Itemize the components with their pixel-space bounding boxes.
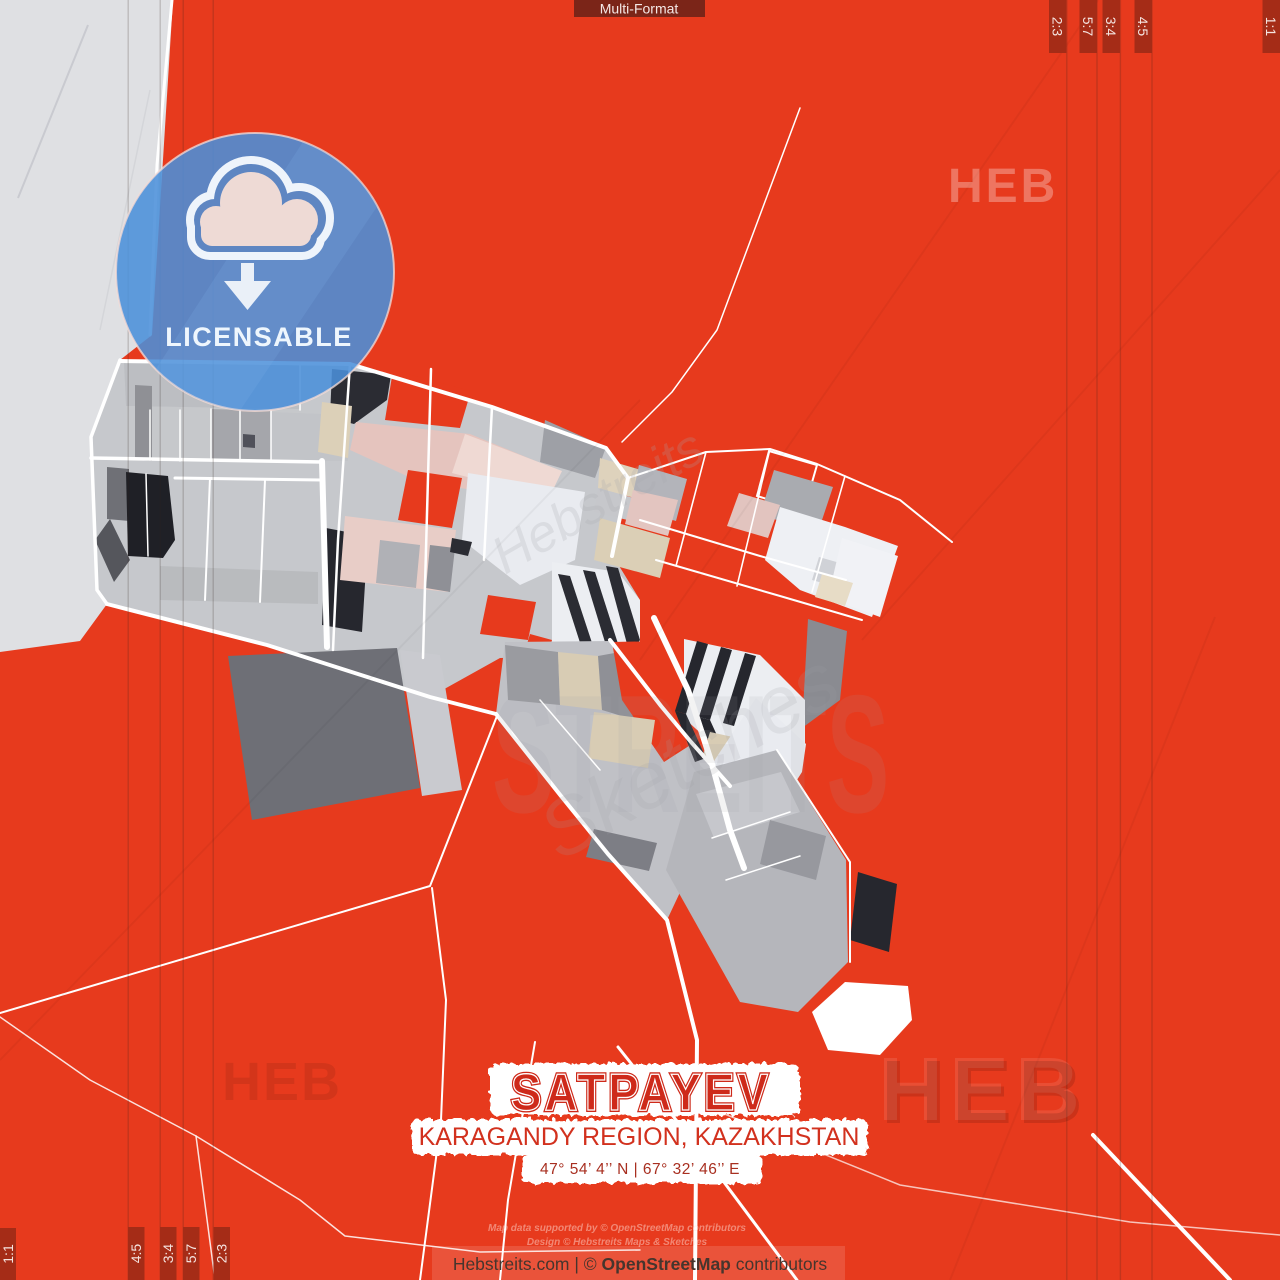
svg-text:5:7: 5:7 xyxy=(183,1244,199,1264)
svg-text:4:5: 4:5 xyxy=(128,1244,144,1264)
svg-text:1:1: 1:1 xyxy=(1263,17,1279,37)
svg-text:LICENSABLE: LICENSABLE xyxy=(165,322,353,352)
svg-text:KARAGANDY REGION, KAZAKHSTAN: KARAGANDY REGION, KAZAKHSTAN xyxy=(419,1123,860,1151)
svg-text:3:4: 3:4 xyxy=(1103,17,1119,37)
svg-text:47° 54’ 4’’ N | 67° 32’: 47° 54’ 4’’ N | 67° 32’ 46’’ E xyxy=(540,1161,740,1178)
svg-text:Map data supported by © OpenSt: Map data supported by © OpenStreetMap co… xyxy=(488,1223,746,1234)
svg-text:2:3: 2:3 xyxy=(1050,17,1066,37)
svg-text:Hebstreits.com | © OpenStreetM: Hebstreits.com | © OpenStreetMap contrib… xyxy=(453,1254,828,1274)
svg-text:Multi-Format: Multi-Format xyxy=(600,1,679,17)
svg-text:3:4: 3:4 xyxy=(160,1244,176,1264)
svg-text:5:7: 5:7 xyxy=(1080,17,1096,37)
svg-text:HEB: HEB xyxy=(222,1052,342,1112)
svg-text:SATPAYEV: SATPAYEV xyxy=(511,1064,771,1121)
svg-text:1:1: 1:1 xyxy=(0,1244,16,1264)
svg-text:4:5: 4:5 xyxy=(1135,17,1151,37)
svg-text:2:3: 2:3 xyxy=(214,1244,230,1264)
svg-text:HEB: HEB xyxy=(881,1043,1089,1143)
svg-text:HEB: HEB xyxy=(948,160,1058,213)
